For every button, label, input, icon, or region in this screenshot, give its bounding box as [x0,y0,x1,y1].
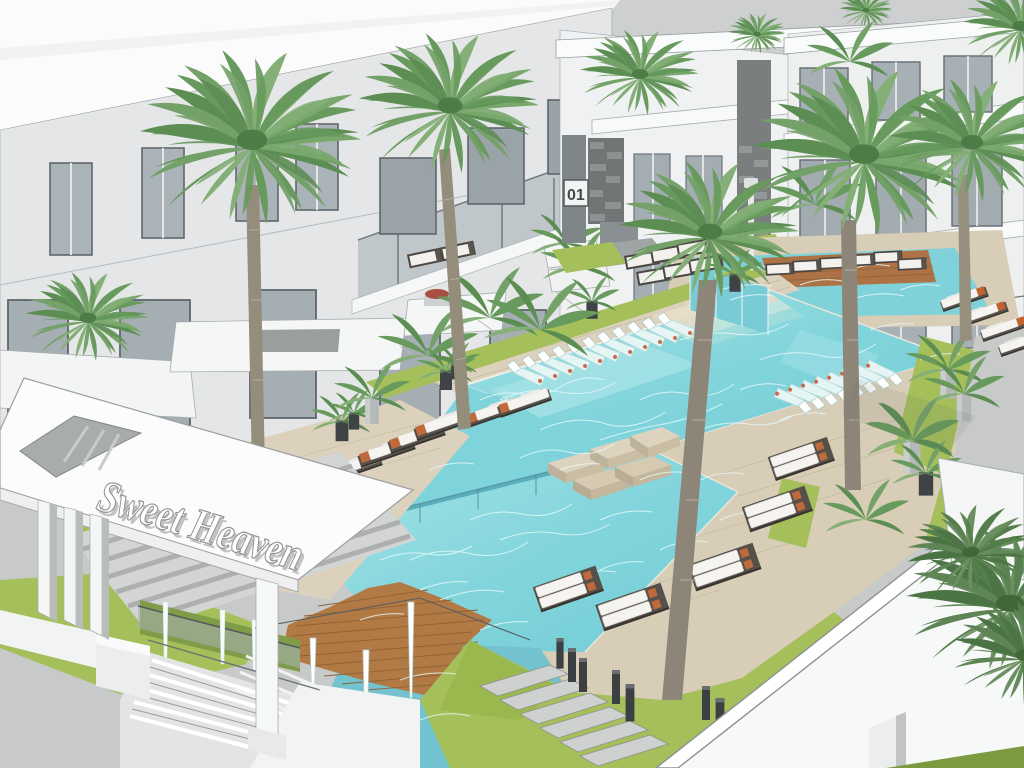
svg-text:01: 01 [567,187,585,204]
